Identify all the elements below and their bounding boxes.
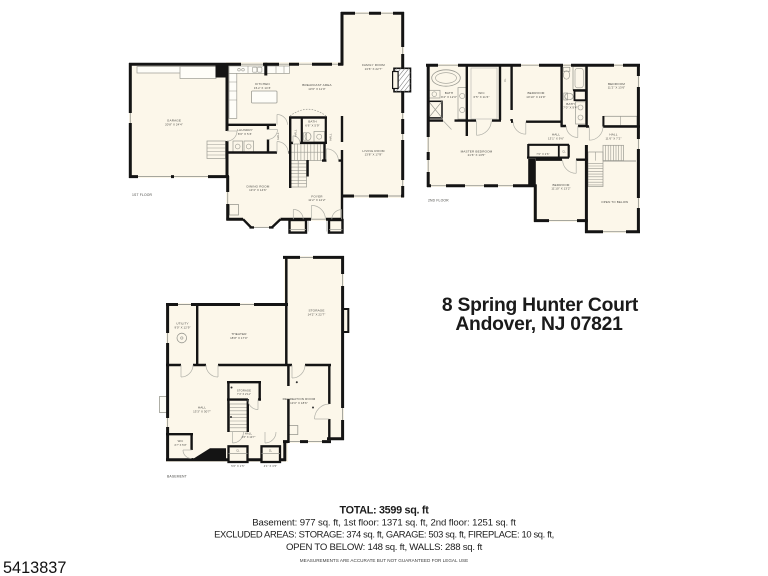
svg-text:10’10" X 13’9": 10’10" X 13’9" (526, 95, 546, 99)
svg-text:4’7" X 5’8": 4’7" X 5’8" (174, 444, 187, 447)
svg-text:11’2" X 13’6": 11’2" X 13’6" (608, 86, 626, 90)
svg-text:13’1" X 9’6": 13’1" X 9’6" (548, 136, 564, 140)
svg-text:STORAGE: STORAGE (237, 388, 251, 392)
svg-text:13’3" X 14’6": 13’3" X 14’6" (249, 188, 267, 192)
svg-text:20’8" X 24’4": 20’8" X 24’4" (165, 122, 183, 126)
svg-text:Andover, NJ 07821: Andover, NJ 07821 (455, 314, 623, 335)
svg-text:4’6" X 10’7": 4’6" X 10’7" (241, 436, 255, 439)
svg-text:1ST FLOOR: 1ST FLOOR (132, 193, 153, 197)
svg-text:13’6" X 22’7": 13’6" X 22’7" (365, 67, 383, 71)
svg-text:HALL: HALL (329, 133, 333, 141)
svg-text:11’2" X 12’2": 11’2" X 12’2" (308, 198, 326, 202)
svg-text:8 Spring Hunter Court: 8 Spring Hunter Court (442, 295, 639, 316)
svg-text:WIC: WIC (178, 439, 184, 443)
svg-text:18’8" X 17’0": 18’8" X 17’0" (230, 336, 248, 340)
svg-text:6’6" X 5’9": 6’6" X 5’9" (305, 124, 319, 128)
svg-text:7’0" X 9’4": 7’0" X 9’4" (563, 106, 577, 110)
svg-text:Basement: 977 sq. ft, 1st floo: Basement: 977 sq. ft, 1st floor: 1371 sq… (252, 517, 516, 528)
svg-text:TOTAL: 3599 sq. ft: TOTAL: 3599 sq. ft (340, 504, 430, 516)
svg-text:MEASUREMENTS ARE ACCURATE BUT: MEASUREMENTS ARE ACCURATE BUT NOT GUARAN… (300, 558, 468, 563)
svg-text:BASEMENT: BASEMENT (167, 474, 187, 478)
svg-text:HALL: HALL (276, 132, 280, 140)
svg-text:15.2’ X 13.5’: 15.2’ X 13.5’ (254, 86, 272, 90)
svg-text:6’5" X 11’6": 6’5" X 11’6" (474, 95, 490, 99)
svg-text:11’6" X 7’2": 11’6" X 7’2" (606, 136, 622, 140)
svg-text:CL: CL (236, 450, 240, 452)
svg-text:CL: CL (269, 450, 273, 452)
svg-text:5’6" X 1’5": 5’6" X 1’5" (231, 464, 245, 468)
svg-text:9’4" X 12’0": 9’4" X 12’0" (441, 95, 457, 99)
svg-text:EXCLUDED AREAS: STORAGE: 374 s: EXCLUDED AREAS: STORAGE: 374 sq. ft, GAR… (214, 529, 554, 540)
svg-text:OPEN TO BELOW: 148 sq. ft, WAL: OPEN TO BELOW: 148 sq. ft, WALLS: 288 sq… (286, 542, 483, 553)
svg-text:HALL: HALL (245, 431, 253, 435)
svg-text:CL: CL (562, 151, 566, 154)
svg-text:2ND FLOOR: 2ND FLOOR (428, 198, 449, 202)
svg-text:13’8" X 17’8": 13’8" X 17’8" (365, 153, 383, 157)
svg-text:9’0" X 12’9": 9’0" X 12’9" (174, 325, 190, 329)
svg-text:11’10" X 13’2": 11’10" X 13’2" (551, 187, 570, 191)
svg-text:13’6" X 11’0": 13’6" X 11’0" (308, 87, 326, 91)
svg-text:8’0" X 5.5’: 8’0" X 5.5’ (238, 132, 252, 136)
svg-text:13’0" X 18’6": 13’0" X 18’6" (290, 401, 308, 405)
svg-text:CL: CL (504, 78, 507, 82)
svg-text:HALL: HALL (293, 129, 297, 137)
svg-text:5413837: 5413837 (3, 559, 66, 576)
svg-text:21’6" X 13’5": 21’6" X 13’5" (468, 153, 486, 157)
svg-text:14’2" X 22’7": 14’2" X 22’7" (308, 312, 326, 316)
svg-text:4’1" X 3’5": 4’1" X 3’5" (264, 464, 278, 468)
svg-text:OPEN TO BELOW: OPEN TO BELOW (601, 200, 628, 204)
svg-text:13’3" X 30’7": 13’3" X 30’7" (193, 409, 211, 413)
svg-text:7’0" X 2’6": 7’0" X 2’6" (536, 153, 549, 156)
svg-text:7’4" X 2’11": 7’4" X 2’11" (237, 393, 251, 396)
